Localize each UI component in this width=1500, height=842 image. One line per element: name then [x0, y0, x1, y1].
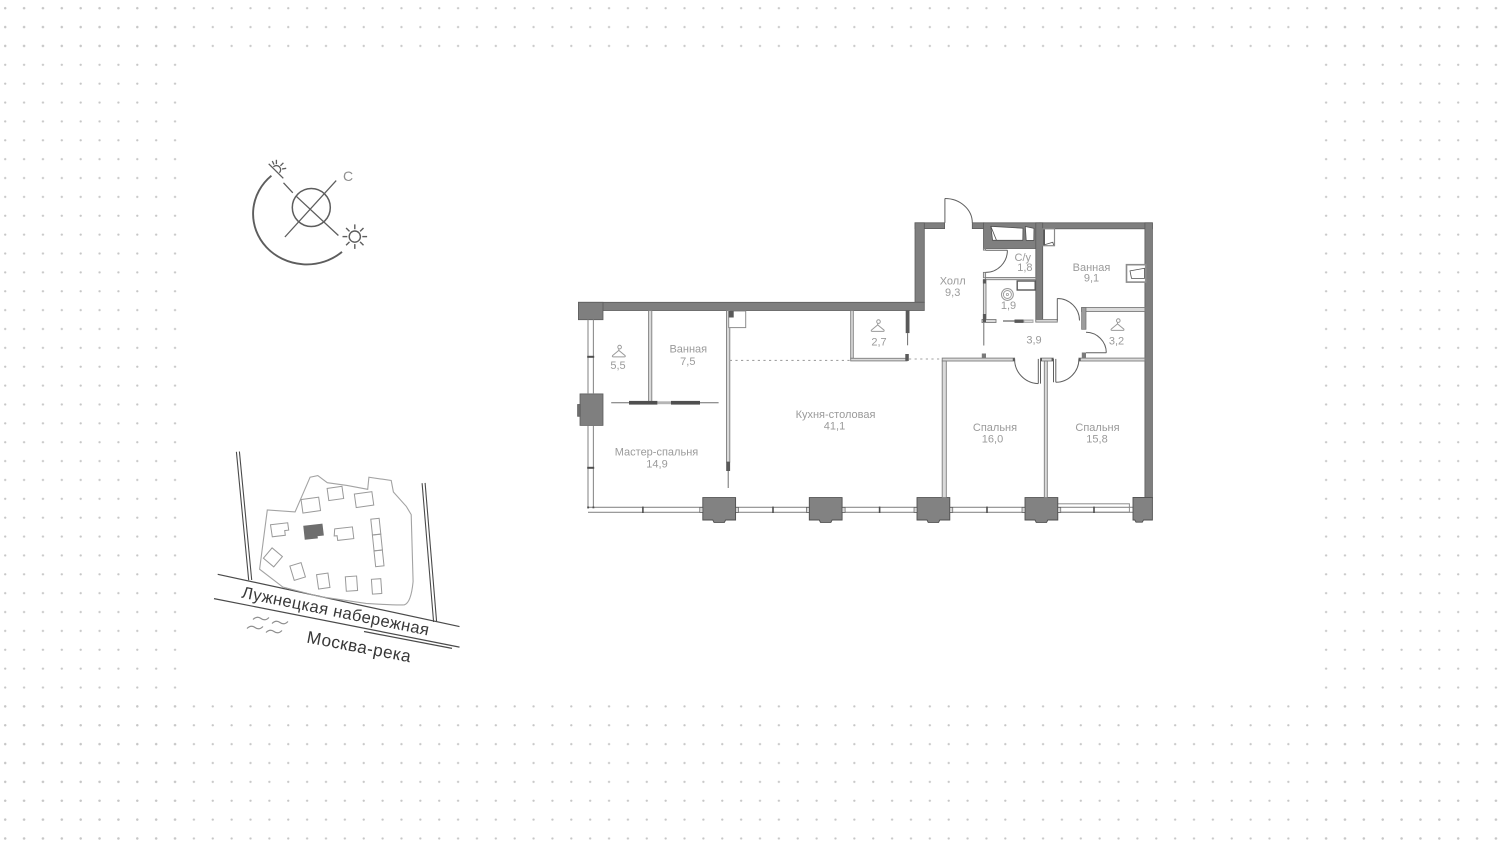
svg-text:Кухня-столовая: Кухня-столовая — [796, 409, 876, 421]
svg-text:2,7: 2,7 — [871, 336, 886, 348]
svg-text:7,5: 7,5 — [680, 356, 695, 368]
svg-text:1,8: 1,8 — [1017, 262, 1032, 274]
svg-text:Мастер-спальня: Мастер-спальня — [615, 447, 699, 459]
svg-text:Ванная: Ванная — [669, 343, 707, 355]
svg-text:Спальня: Спальня — [973, 422, 1017, 434]
svg-text:9,3: 9,3 — [945, 287, 960, 299]
svg-text:3,2: 3,2 — [1109, 336, 1124, 348]
svg-text:3,9: 3,9 — [1026, 335, 1041, 347]
svg-text:15,8: 15,8 — [1086, 434, 1107, 446]
svg-text:Холл: Холл — [940, 276, 966, 288]
svg-text:5,5: 5,5 — [610, 360, 625, 372]
svg-text:1,9: 1,9 — [1001, 300, 1016, 312]
svg-text:16,0: 16,0 — [982, 434, 1003, 446]
svg-text:14,9: 14,9 — [646, 459, 667, 471]
svg-text:Спальня: Спальня — [1075, 422, 1119, 434]
svg-text:C: C — [343, 168, 353, 184]
svg-text:41,1: 41,1 — [824, 421, 845, 433]
svg-text:9,1: 9,1 — [1084, 273, 1099, 285]
